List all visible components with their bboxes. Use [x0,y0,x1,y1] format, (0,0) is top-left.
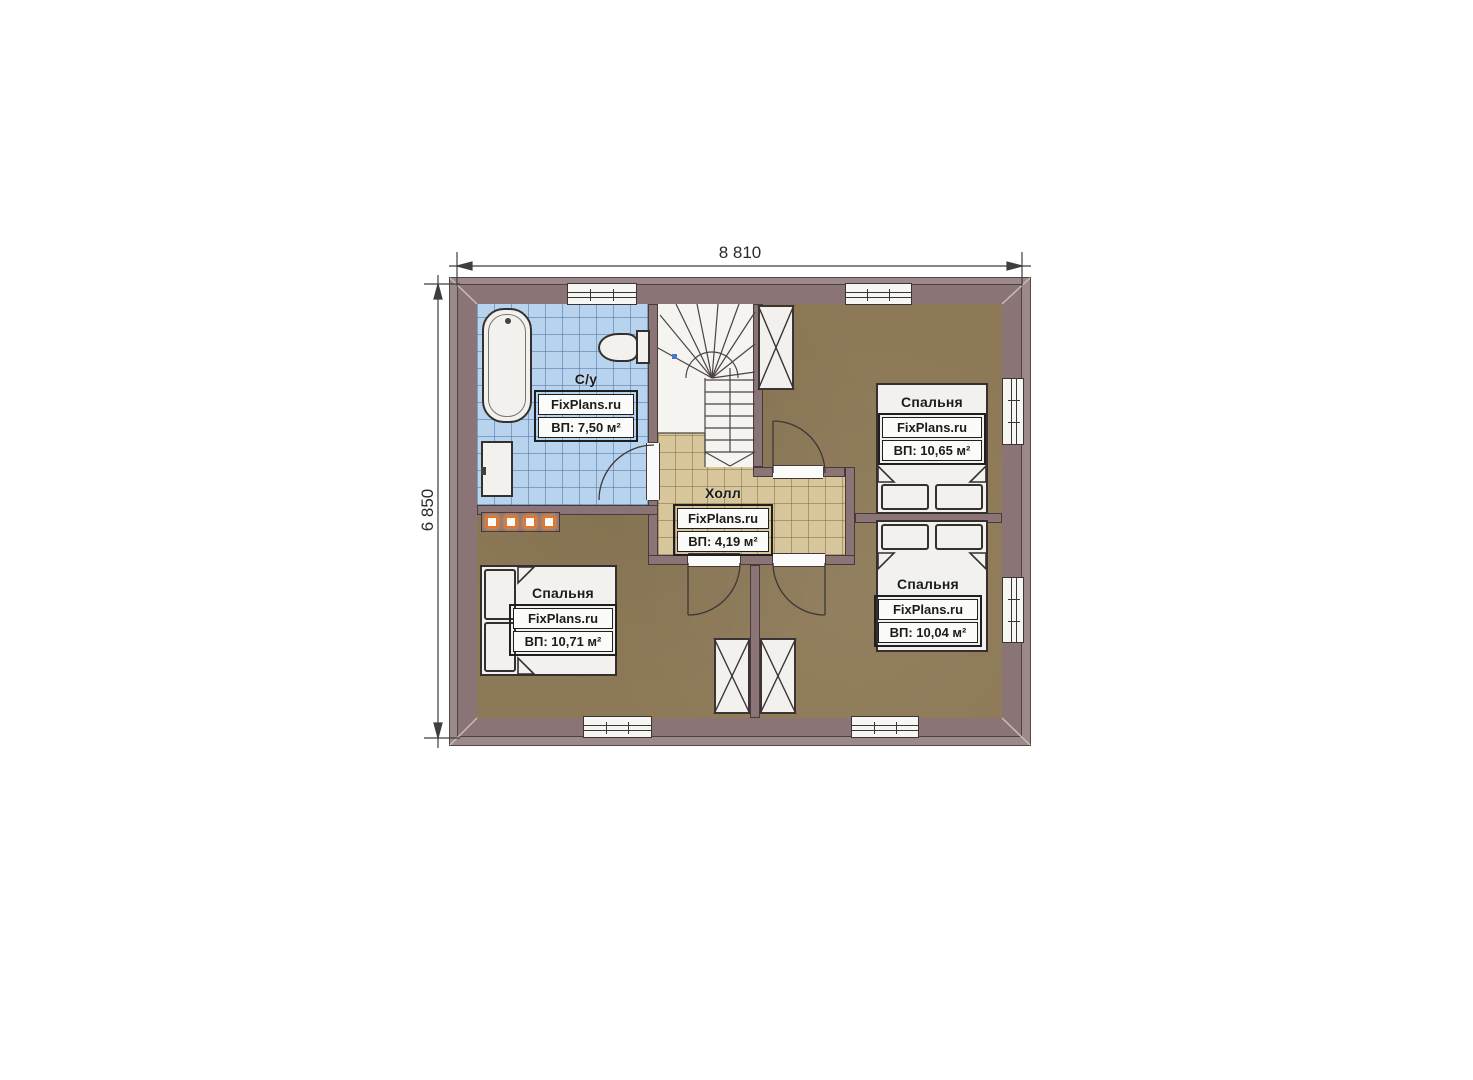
wall-bedrooms-bottom-divider [750,565,760,718]
stairwell-floor [658,304,757,433]
door-opening-bedroom-br [773,553,825,567]
ventilation-shaft-top [758,305,794,390]
room-label-bedroom-br: Спальня FixPlans.ru ВП: 10,04 м² [878,576,978,647]
toilet-tank [636,330,650,364]
dimension-height-label: 6 850 [418,460,438,560]
window-right-bedroom-br [1002,577,1024,643]
room-title-bedroom-tr: Спальня [901,394,963,410]
window-top-bathroom [567,283,637,305]
room-info-box: FixPlans.ru ВП: 7,50 м² [534,390,638,442]
stair-flight-floor [705,433,757,467]
area-label: ВП: 10,71 м² [513,631,613,652]
door-opening-bathroom [646,443,660,500]
ventilation-shaft-bottom-right [760,638,796,714]
washbasin-cabinet [481,441,513,497]
wall-hall-right [845,467,855,565]
pillow [935,524,983,550]
toilet-bowl [598,333,638,362]
room-label-hall: Холл FixPlans.ru ВП: 4,19 м² [677,485,769,556]
wall-bedroom-tr-left [753,467,773,477]
room-title-bedroom-br: Спальня [897,576,959,592]
room-label-bathroom: С/у FixPlans.ru ВП: 7,50 м² [538,371,634,442]
room-info-box: FixPlans.ru ВП: 10,71 м² [509,604,617,656]
window-bottom-bedroom-br [851,716,919,738]
area-label: ВП: 7,50 м² [538,417,634,438]
dimension-width-label: 8 810 [690,243,790,263]
room-title-bathroom: С/у [575,371,597,387]
bathtub-drain [505,318,511,324]
radiator [481,512,560,532]
area-label: ВП: 10,04 м² [878,622,978,643]
brand-label: FixPlans.ru [513,608,613,629]
pillow [881,524,929,550]
wall-bathroom-right-upper [648,304,658,443]
pillow [935,484,983,510]
room-title-bedroom-bl: Спальня [532,585,594,601]
pillow [881,484,929,510]
area-label: ВП: 4,19 м² [677,531,769,552]
door-opening-bedroom-tr [773,465,823,479]
brand-label: FixPlans.ru [538,394,634,415]
brand-label: FixPlans.ru [677,508,769,529]
area-label: ВП: 10,65 м² [882,440,982,461]
window-right-bedroom-tr [1002,378,1024,445]
window-bottom-bedroom-bl [583,716,652,738]
room-label-bedroom-tr: Спальня FixPlans.ru ВП: 10,65 м² [882,394,982,465]
room-title-hall: Холл [705,485,741,501]
room-info-box: FixPlans.ru ВП: 4,19 м² [673,504,773,556]
bathtub [482,308,532,423]
room-info-box: FixPlans.ru ВП: 10,65 м² [878,413,986,465]
room-info-box: FixPlans.ru ВП: 10,04 м² [874,595,982,647]
brand-label: FixPlans.ru [882,417,982,438]
room-label-bedroom-bl: Спальня FixPlans.ru ВП: 10,71 м² [513,585,613,656]
window-top-bedroom-tr [845,283,912,305]
floor-plan-canvas: 8 810 6 850 С/у FixPlans.ru ВП: 7,50 м² … [0,0,1473,1080]
brand-label: FixPlans.ru [878,599,978,620]
wall-hall-bottom-b [740,555,773,565]
ventilation-shaft-bottom-left [714,638,750,714]
wall-hall-bottom-c [825,555,855,565]
wall-bedroom-tr-right [823,467,845,477]
wall-hall-bottom-a [648,555,688,565]
